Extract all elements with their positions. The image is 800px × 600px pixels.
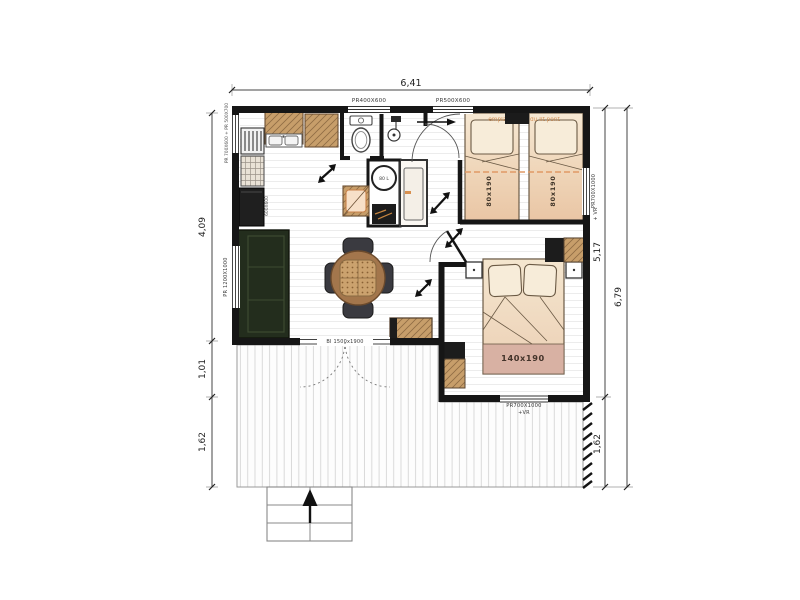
floor-plan: 600X600: [0, 0, 800, 600]
window-left-1-label: PR 700X600 + PR 500X700: [224, 103, 230, 163]
dimension-right: 5,17 1,62 6,79: [593, 105, 633, 490]
wc-room: [350, 116, 372, 152]
water-heater-label: 80 L: [379, 176, 389, 182]
kitchen-sink: [266, 134, 302, 147]
dim-right-terrace: 1,62: [593, 434, 603, 454]
window-top-2-label: PR500X600: [436, 98, 470, 104]
dimension-top: 6,41: [229, 78, 593, 96]
fridge: [239, 188, 264, 226]
fridge-label: 600X600: [264, 196, 270, 216]
window-top-1-label: PR400X600: [352, 98, 386, 104]
window-right-1: [582, 168, 591, 215]
dim-left-main: 4,09: [198, 217, 208, 237]
dim-left-mid: 1,01: [198, 359, 208, 379]
window-top-2: [433, 105, 473, 114]
window-right-1-label: PR700X1000: [591, 174, 597, 208]
window-left-2-label: PR 1200X1000: [223, 257, 229, 296]
nightstand-right: [566, 262, 582, 278]
twin-bed-1-label: 80x190: [485, 175, 493, 206]
window-top-1: [348, 105, 390, 114]
twin-bed-2: 80x190: [529, 113, 583, 222]
deck-edge-hatch: [583, 403, 592, 488]
twin-bed-1: 80x190: [465, 113, 519, 222]
hob: [241, 128, 264, 154]
water-heater-closet: 80 L: [368, 160, 400, 226]
oven: [241, 156, 264, 186]
bay-window: BI 1500x1900: [300, 337, 390, 346]
master-cabinet-left: [444, 342, 465, 388]
window-left-2: [231, 246, 240, 308]
twin-bed-2-label: 80x190: [549, 175, 557, 206]
kitchen-counter-2: [305, 114, 338, 147]
floor-plan-page: 600X600: [0, 0, 800, 600]
window-bottom-1-label: PR700X1000: [506, 403, 541, 409]
hall-wardrobe: [400, 160, 427, 226]
dimension-left: 4,09 1,01 1,62: [198, 110, 218, 490]
sofa: [237, 230, 289, 338]
toilet: [350, 116, 372, 152]
washbasin: [343, 186, 369, 216]
nightstand-left: [466, 262, 482, 278]
dim-width-top: 6,41: [400, 78, 421, 89]
double-bed: 140x190: [483, 259, 564, 374]
double-bed-label: 140x190: [501, 353, 545, 363]
dim-right-total: 6,79: [614, 287, 624, 307]
window-bottom-1-suffix: +VR: [518, 410, 530, 416]
window-right-1-suffix: + VR: [593, 207, 599, 220]
dim-right-main: 5,17: [593, 242, 603, 262]
dim-left-terrace: 1,62: [198, 432, 208, 452]
master-cabinet-top: [545, 238, 584, 262]
window-left-1: [231, 115, 240, 153]
